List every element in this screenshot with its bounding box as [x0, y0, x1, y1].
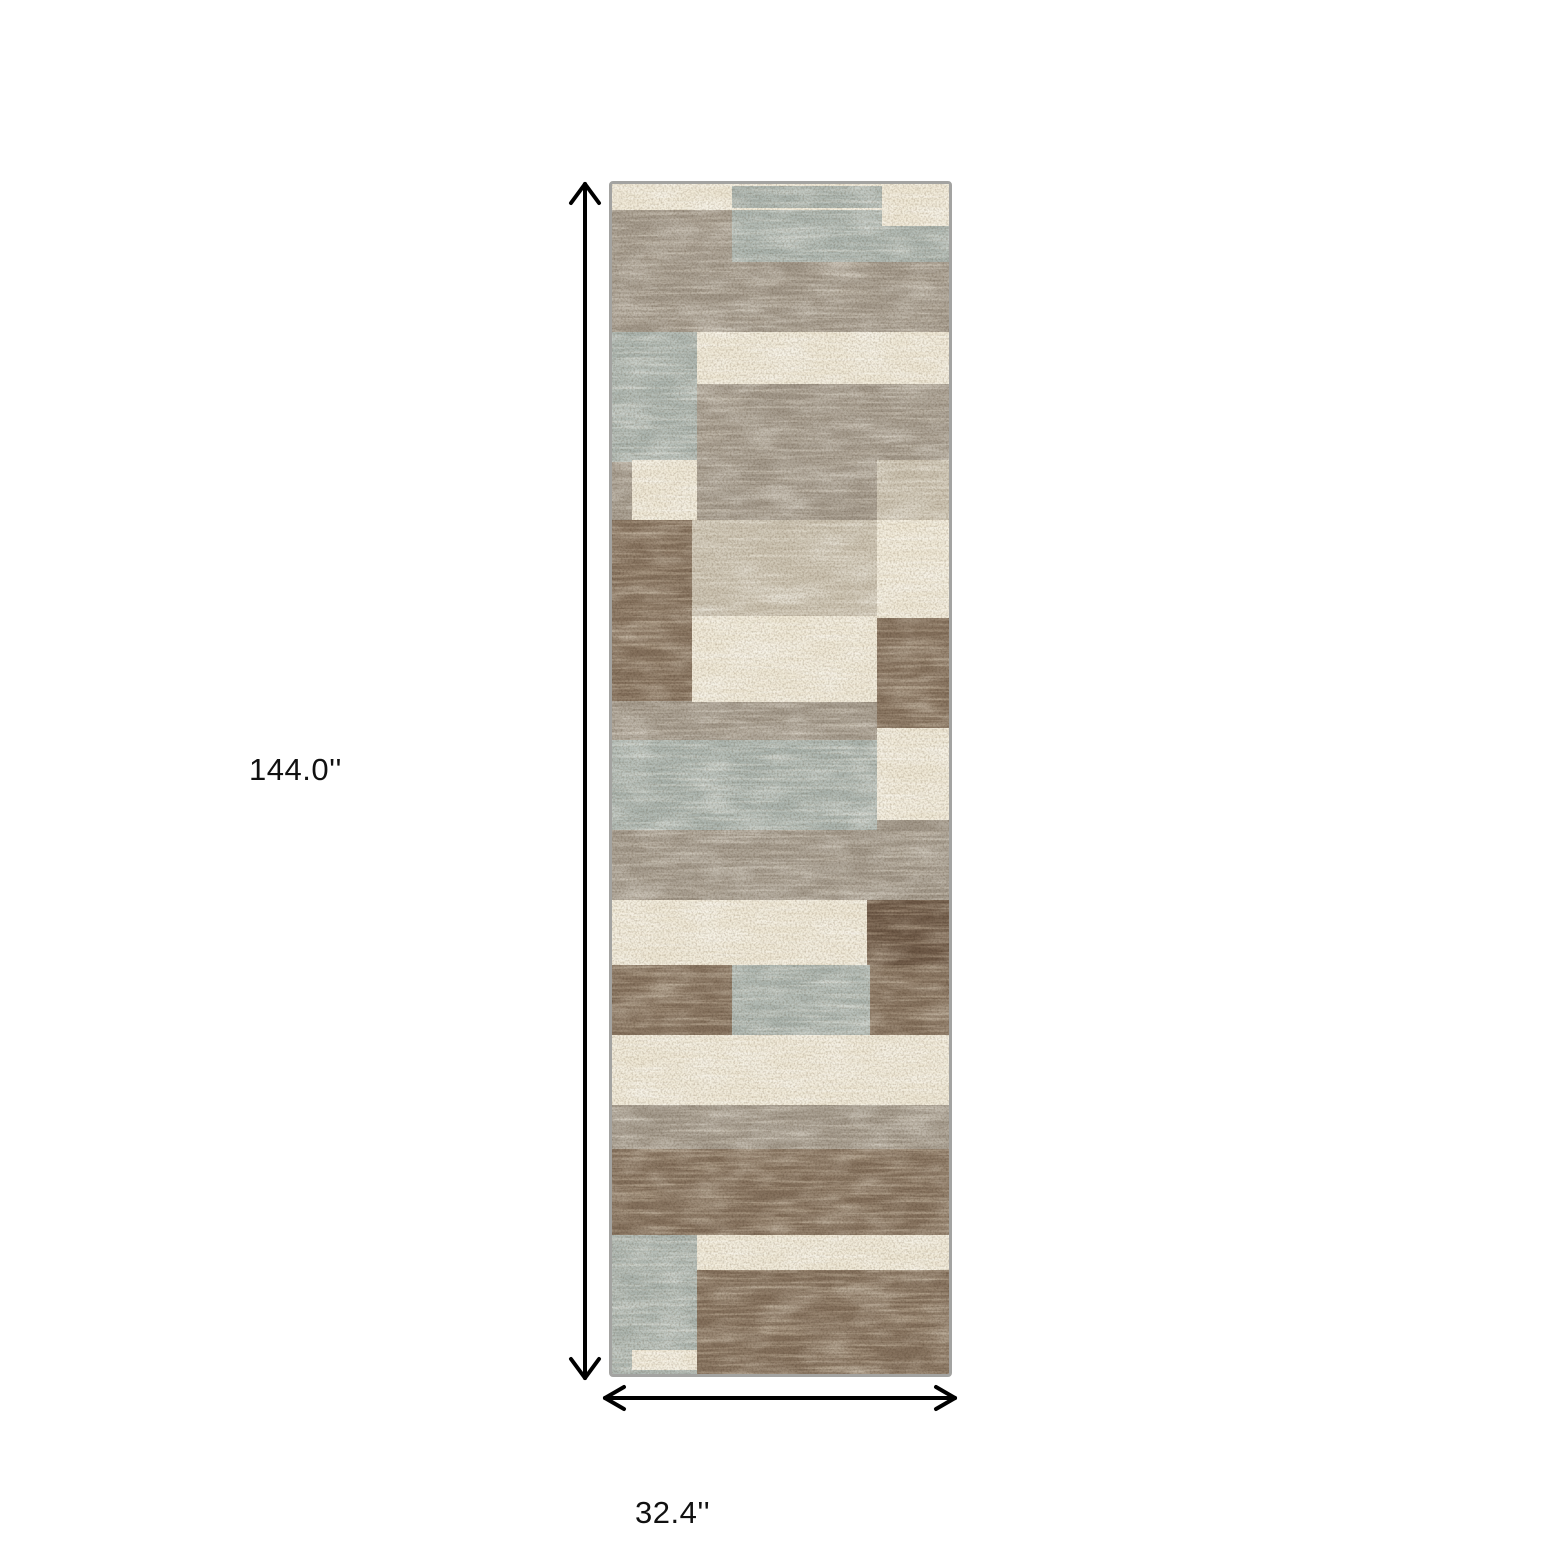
rug-patch: [612, 1035, 949, 1105]
rug-patch: [870, 965, 949, 1035]
product-dimension-figure: 144.0'' 32.4'': [0, 0, 1560, 1560]
rug-patch: [612, 520, 692, 616]
rug-patch: [692, 616, 877, 702]
rug-patch: [697, 1270, 949, 1374]
height-arrow-icon: [568, 180, 602, 1382]
rug-patch: [612, 332, 697, 462]
rug-patch: [697, 332, 949, 384]
rug-patch: [612, 616, 692, 701]
rug-patch: [882, 184, 949, 226]
rug-patch: [732, 965, 870, 1035]
rug-patch: [632, 1350, 697, 1370]
rug-patch: [877, 728, 949, 820]
width-arrow-icon: [601, 1383, 959, 1413]
rug-patch: [612, 965, 732, 1035]
rug-patch: [732, 186, 882, 208]
width-dimension-label: 32.4'': [635, 1495, 710, 1531]
rug-patch: [612, 740, 877, 830]
height-dimension-label: 144.0'': [249, 752, 342, 788]
rug-patch: [612, 210, 732, 262]
rug-patch: [877, 520, 949, 618]
rug-patch: [692, 520, 877, 616]
rug-patch: [612, 1149, 949, 1235]
rug-patch: [697, 1235, 949, 1270]
rug-patch: [867, 900, 949, 965]
rug-pattern: [612, 184, 949, 1374]
rug-patch: [877, 460, 949, 522]
rug-image: [609, 181, 952, 1377]
rug-patch: [877, 618, 949, 728]
rug-patch: [612, 900, 867, 965]
rug-patch: [632, 460, 697, 522]
